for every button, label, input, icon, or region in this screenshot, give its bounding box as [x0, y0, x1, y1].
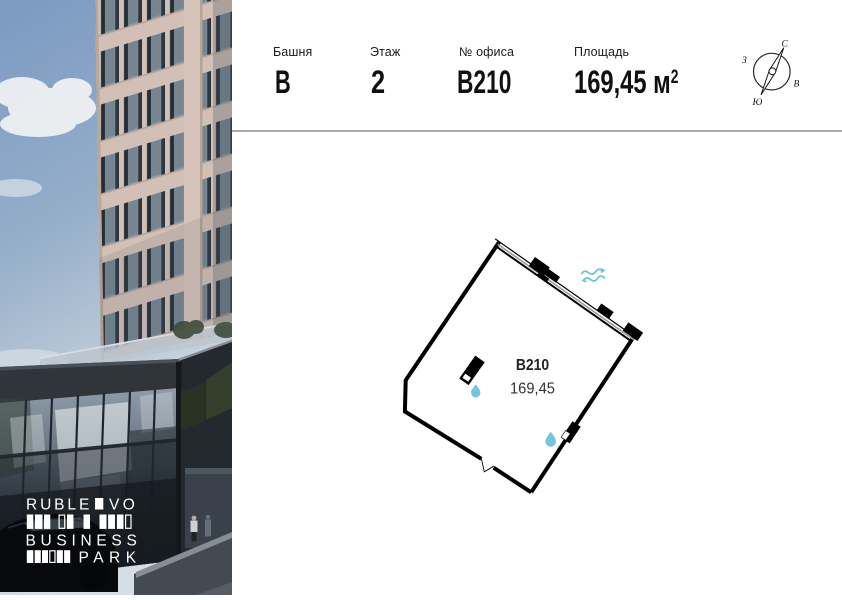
svg-text:В210: В210	[516, 357, 549, 374]
svg-text:З: З	[742, 56, 747, 66]
svg-text:169,45: 169,45	[510, 380, 555, 398]
svg-text:С: С	[782, 40, 789, 50]
svg-text:Ю: Ю	[752, 98, 763, 108]
svg-text:В: В	[794, 80, 800, 90]
